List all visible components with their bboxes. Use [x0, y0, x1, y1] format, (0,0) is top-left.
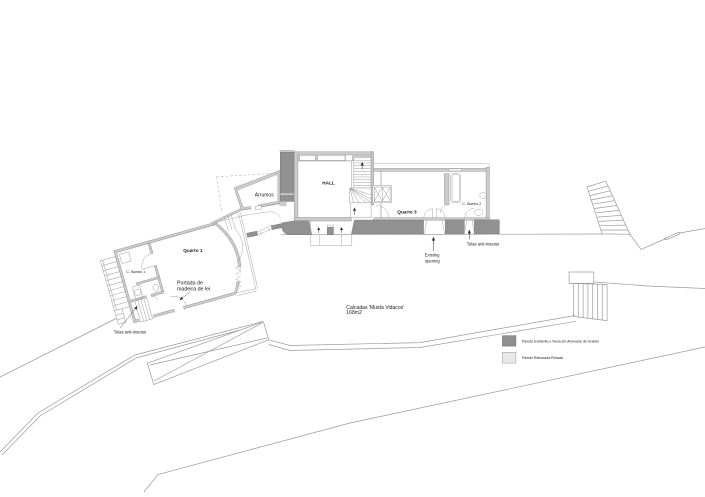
svg-text:Telas anti-insetos: Telas anti-insetos: [114, 330, 146, 335]
svg-text:Parede Rebocada Pintada: Parede Rebocada Pintada: [522, 356, 563, 360]
svg-text:madeira de lei: madeira de lei: [177, 287, 210, 293]
svg-text:Quarto 3: Quarto 3: [397, 210, 417, 215]
svg-text:HALL: HALL: [322, 181, 335, 186]
svg-text:Parede Existente e Nova em Alv: Parede Existente e Nova em Alvenaria de …: [522, 340, 599, 344]
svg-text:Telas anti-insetos: Telas anti-insetos: [467, 242, 499, 247]
svg-text:Existing: Existing: [425, 252, 440, 257]
svg-text:Arrumos: Arrumos: [255, 192, 274, 198]
svg-text:168m2: 168m2: [346, 310, 362, 316]
svg-text:Quarto 1: Quarto 1: [183, 248, 203, 253]
svg-text:C. Banho 2: C. Banho 2: [462, 202, 481, 206]
svg-text:C. Banho 1: C. Banho 1: [126, 270, 145, 274]
svg-text:opening: opening: [425, 258, 441, 263]
